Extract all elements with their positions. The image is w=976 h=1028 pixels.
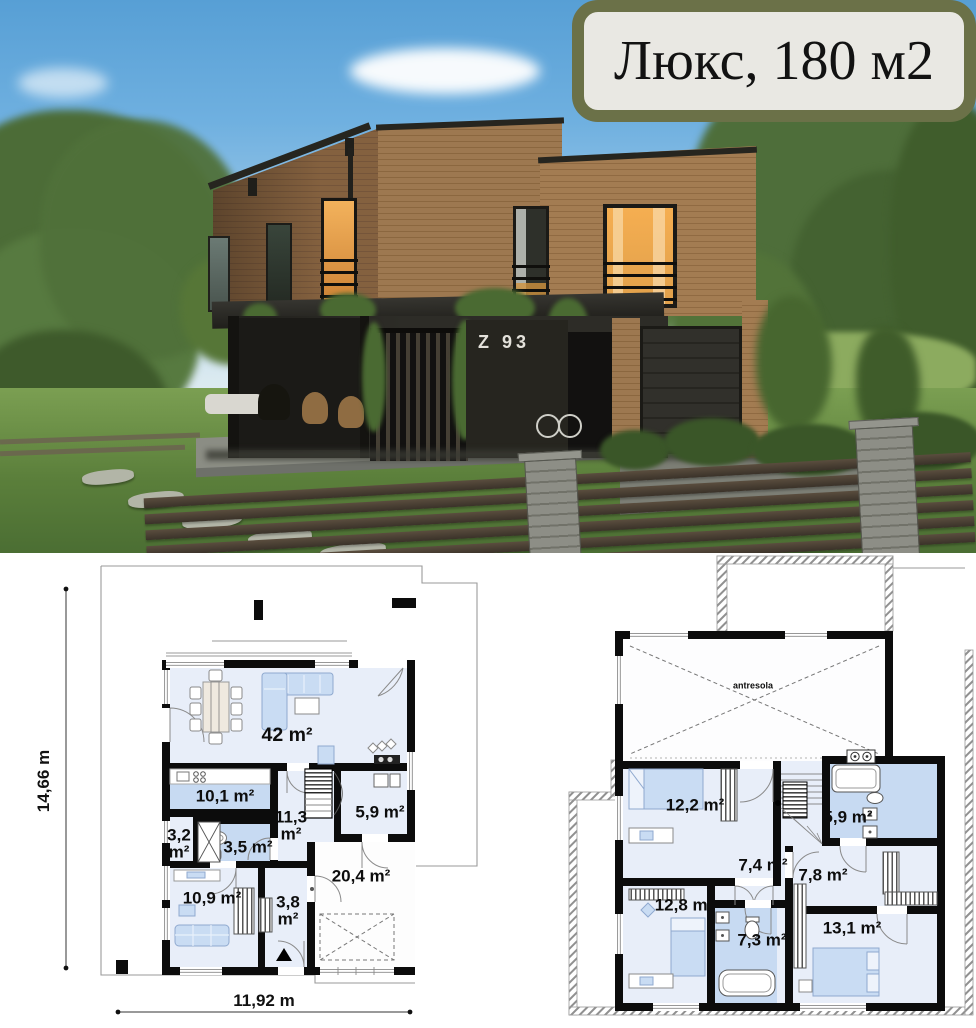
room-label-bathroom: 3,5 m² <box>223 838 272 855</box>
wicker-chair <box>302 392 328 424</box>
bush <box>600 430 670 470</box>
dimension-height: 14,66 m <box>34 750 54 812</box>
room-label-bedroom: 10,9 m² <box>183 889 242 906</box>
room-label-mezzanine: antresola <box>731 681 775 690</box>
upper-floor-plan: antresola 12,2 m² 5,9 m² 7,4 m² 7,8 m² 1… <box>490 553 976 1028</box>
ground-floor-plan: 42 m² 10,1 m² 3,2 m² 11,3 m² 3,5 m² 5,9 … <box>0 553 490 1028</box>
bicycle-wheel <box>536 414 560 438</box>
real-estate-listing: Z 93 Люкс, 180 м2 <box>0 0 976 1028</box>
room-label-hall: 7,4 m² <box>738 856 787 873</box>
balcony-rail <box>603 262 677 265</box>
cloud <box>18 68 108 98</box>
room-label-living: 42 m² <box>262 726 313 746</box>
title-badge-label: Люкс, 180 м2 <box>614 29 934 93</box>
room-label-garage: 20,4 m² <box>332 867 391 884</box>
bush <box>664 418 760 466</box>
porch-post <box>228 316 239 458</box>
brick-pillar <box>855 425 920 553</box>
room-label-hall: 11,3 m² <box>266 809 316 844</box>
room-label-kitchen: 10,1 m² <box>196 787 255 804</box>
dimension-width: 11,92 m <box>233 991 294 1011</box>
outdoor-sofa <box>205 394 263 414</box>
bicycle-wheel <box>558 414 582 438</box>
floor-plans: 42 m² 10,1 m² 3,2 m² 11,3 m² 3,5 m² 5,9 … <box>0 553 976 1028</box>
laundry-appliances <box>847 750 875 763</box>
brick-pillar <box>524 458 582 553</box>
upper-floor-drawing <box>490 553 976 1028</box>
wicker-chair <box>338 396 364 428</box>
room-label-bedroom3: 13,1 m² <box>823 919 882 936</box>
room-label-bedroom2: 12,8 m² <box>655 896 714 913</box>
balcony-rail <box>512 277 550 280</box>
balcony-rail <box>320 271 358 274</box>
balcony-rail <box>512 265 550 268</box>
curtain <box>653 208 665 304</box>
curtain <box>613 208 623 304</box>
roof-post <box>248 178 257 196</box>
title-badge: Люкс, 180 м2 <box>572 0 976 122</box>
balcony-rail <box>320 259 358 262</box>
room-label-wardrobe-room: 7,8 m² <box>798 866 847 883</box>
window-lit <box>321 198 357 304</box>
balcony-rail <box>603 274 677 277</box>
room-label-utility: 5,9 m² <box>355 803 404 820</box>
yard-tree <box>756 296 832 430</box>
room-label-bathroom2: 7,3 m² <box>737 931 786 948</box>
room-label-wardrobe: 3,2 m² <box>160 827 198 862</box>
grill <box>258 384 290 420</box>
window <box>266 223 292 307</box>
room-label-closet: 3,8 m² <box>268 894 308 929</box>
vine <box>362 322 386 432</box>
room-label-bedroom1: 12,2 m² <box>666 796 725 813</box>
house-number: Z 93 <box>478 332 530 353</box>
cloud <box>350 48 540 94</box>
house-photo: Z 93 Люкс, 180 м2 <box>0 0 976 553</box>
porch <box>228 318 368 450</box>
balcony-rail <box>603 286 677 289</box>
room-label-bathroom1: 5,9 m² <box>823 808 872 825</box>
balcony-rail <box>320 283 358 286</box>
